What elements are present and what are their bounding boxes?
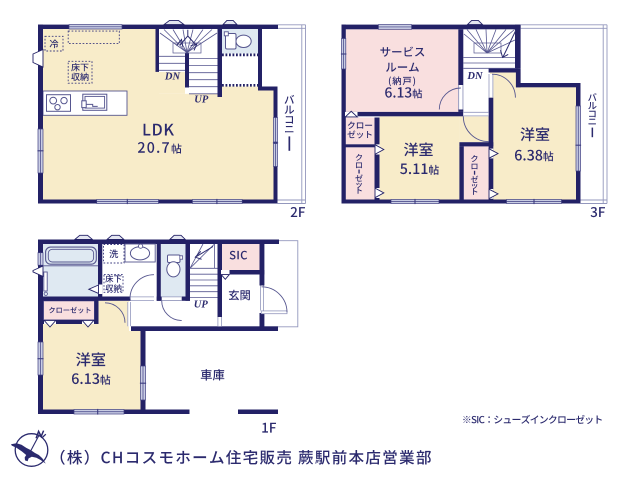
svg-text:DN: DN [164, 72, 181, 83]
svg-text:UP: UP [194, 94, 209, 105]
svg-text:DN: DN [466, 71, 483, 82]
svg-text:UP: UP [194, 299, 209, 310]
